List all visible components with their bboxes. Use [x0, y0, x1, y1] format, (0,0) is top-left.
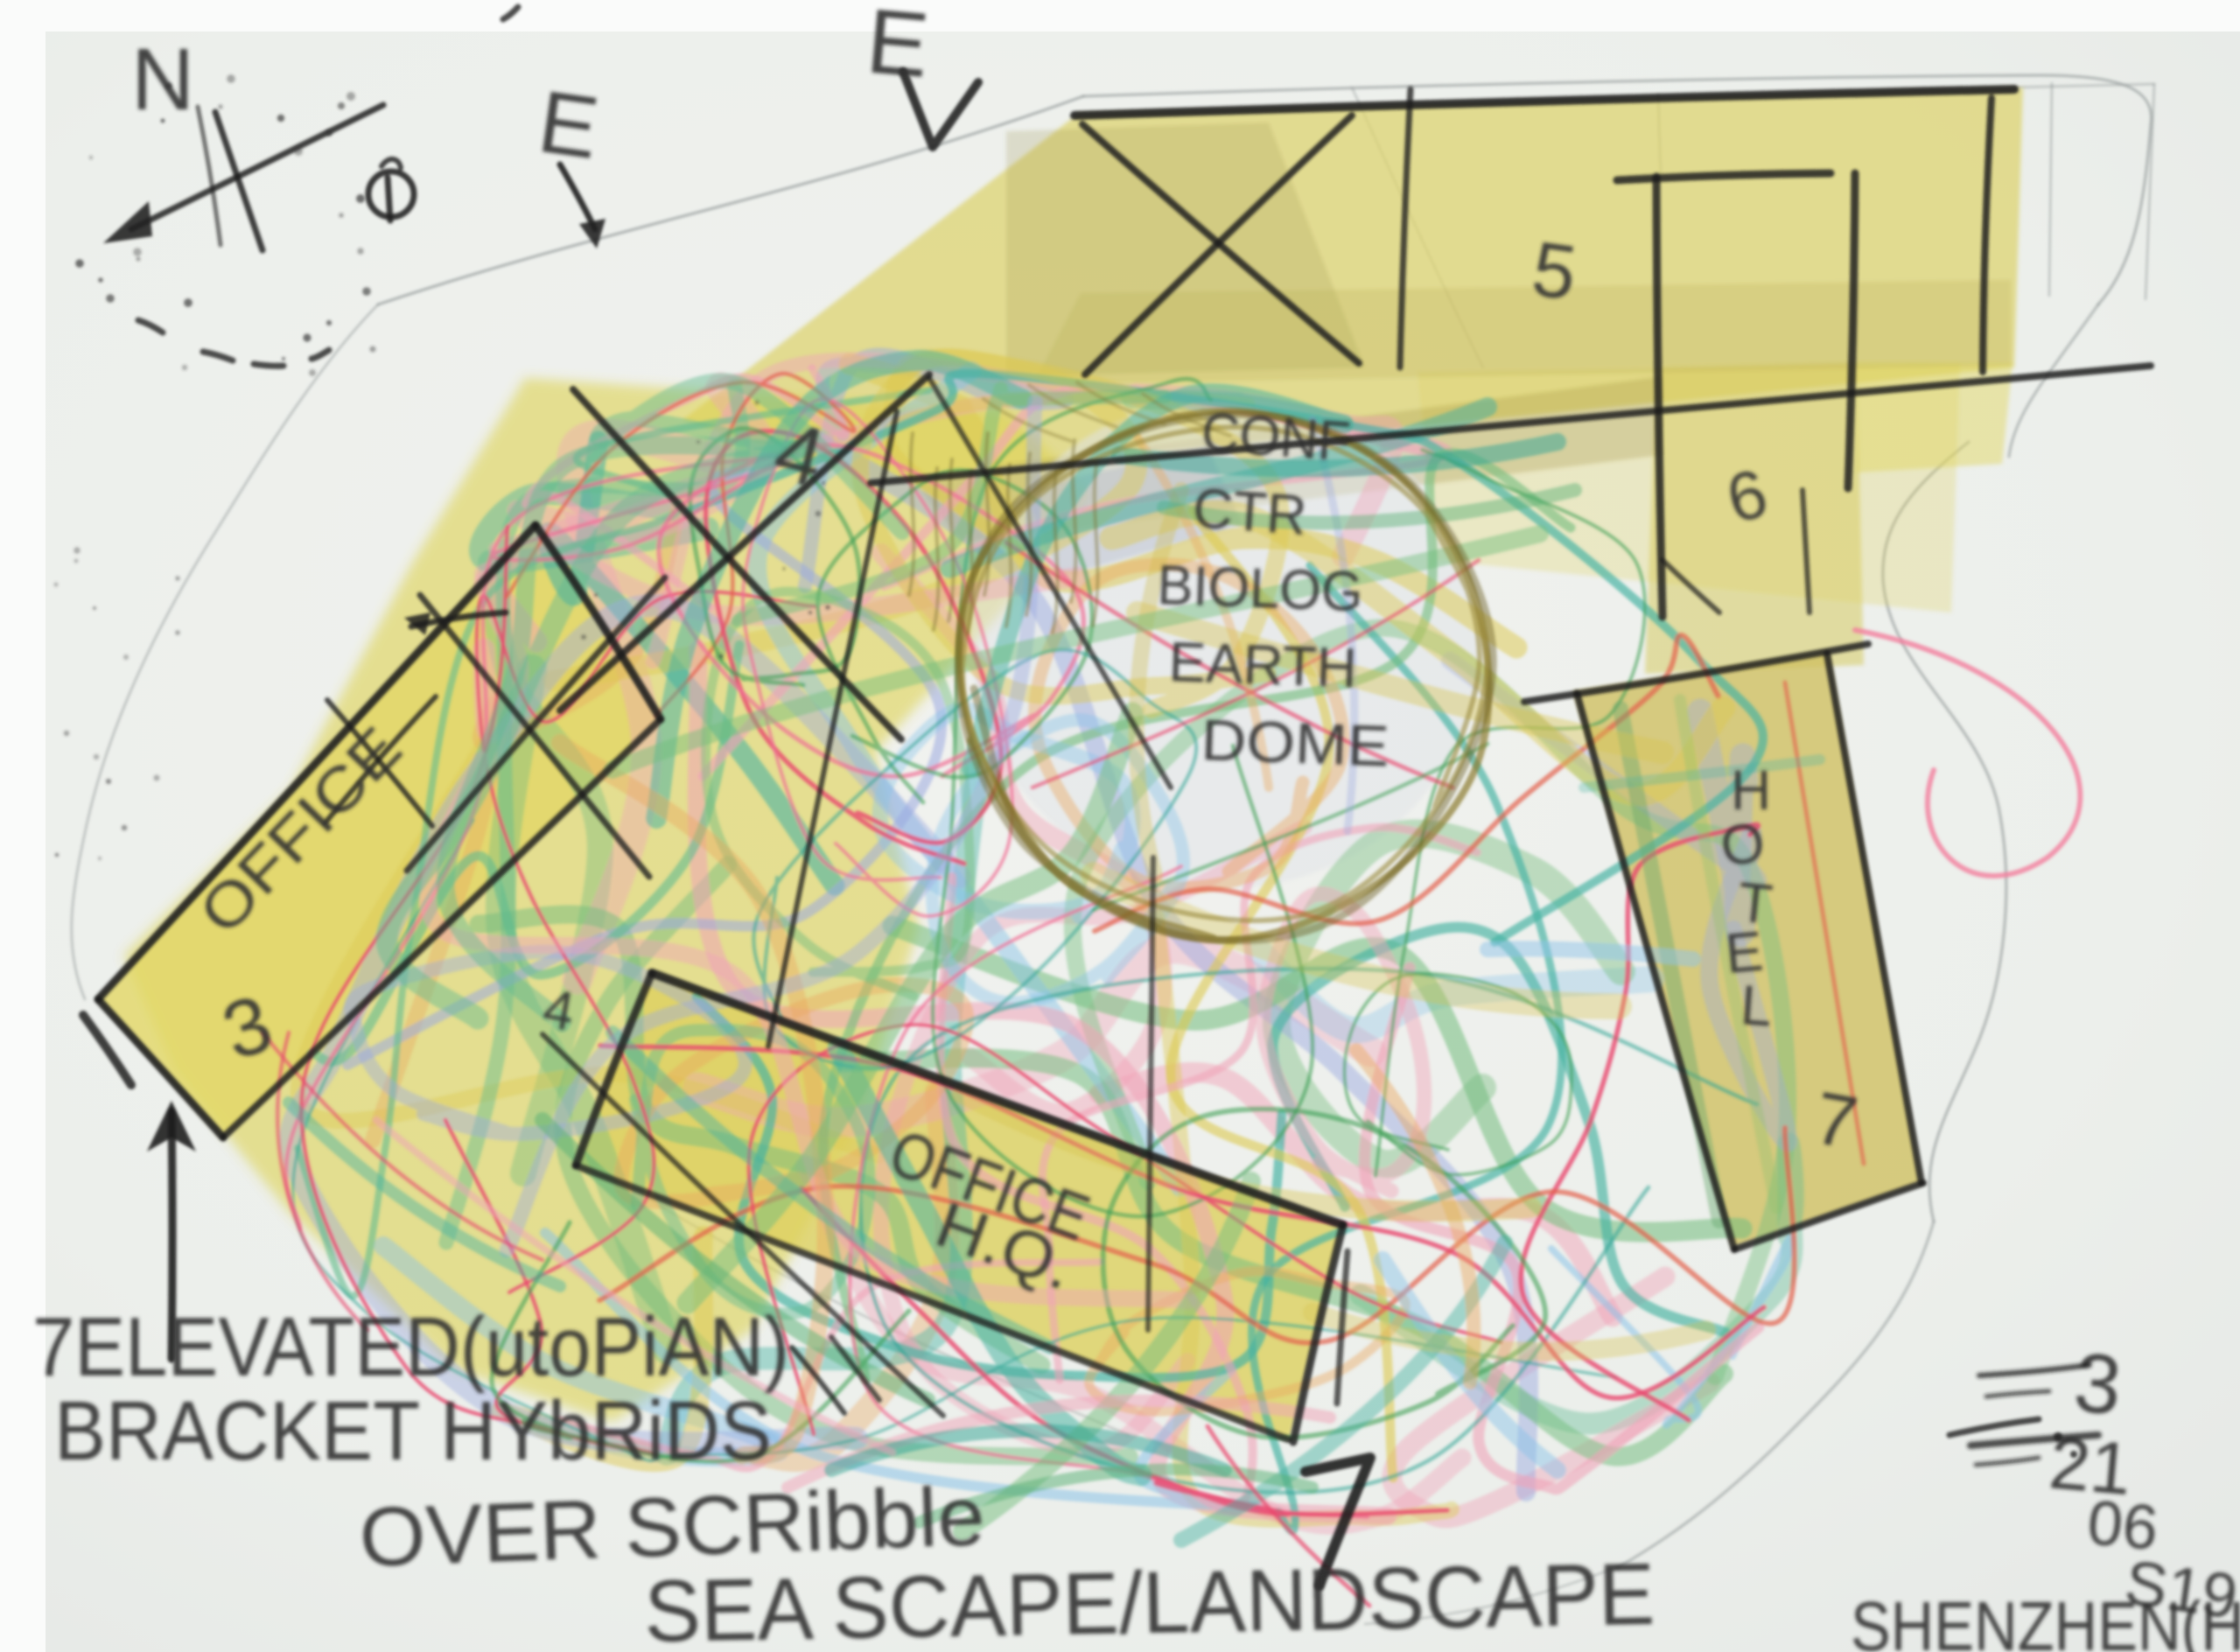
- svg-text:7ELEVATED(utoPiAN): 7ELEVATED(utoPiAN): [32, 1300, 789, 1394]
- svg-text:3: 3: [2070, 1335, 2125, 1432]
- svg-text:N: N: [131, 31, 194, 129]
- svg-text:SEA SCAPE/LANDSCAPE: SEA SCAPE/LANDSCAPE: [643, 1545, 1655, 1652]
- svg-text:BIOLOG: BIOLOG: [1157, 553, 1364, 623]
- svg-text:O: O: [1717, 810, 1768, 878]
- svg-text:E: E: [863, 0, 933, 97]
- svg-text:L: L: [1739, 973, 1774, 1038]
- svg-text:CTR: CTR: [1191, 476, 1309, 547]
- svg-text:CONF: CONF: [1200, 400, 1353, 473]
- svg-text:DOME: DOME: [1200, 707, 1390, 778]
- svg-text:EARTH: EARTH: [1168, 630, 1358, 699]
- svg-text:BRACKET HYbRiDS: BRACKET HYbRiDS: [54, 1384, 772, 1478]
